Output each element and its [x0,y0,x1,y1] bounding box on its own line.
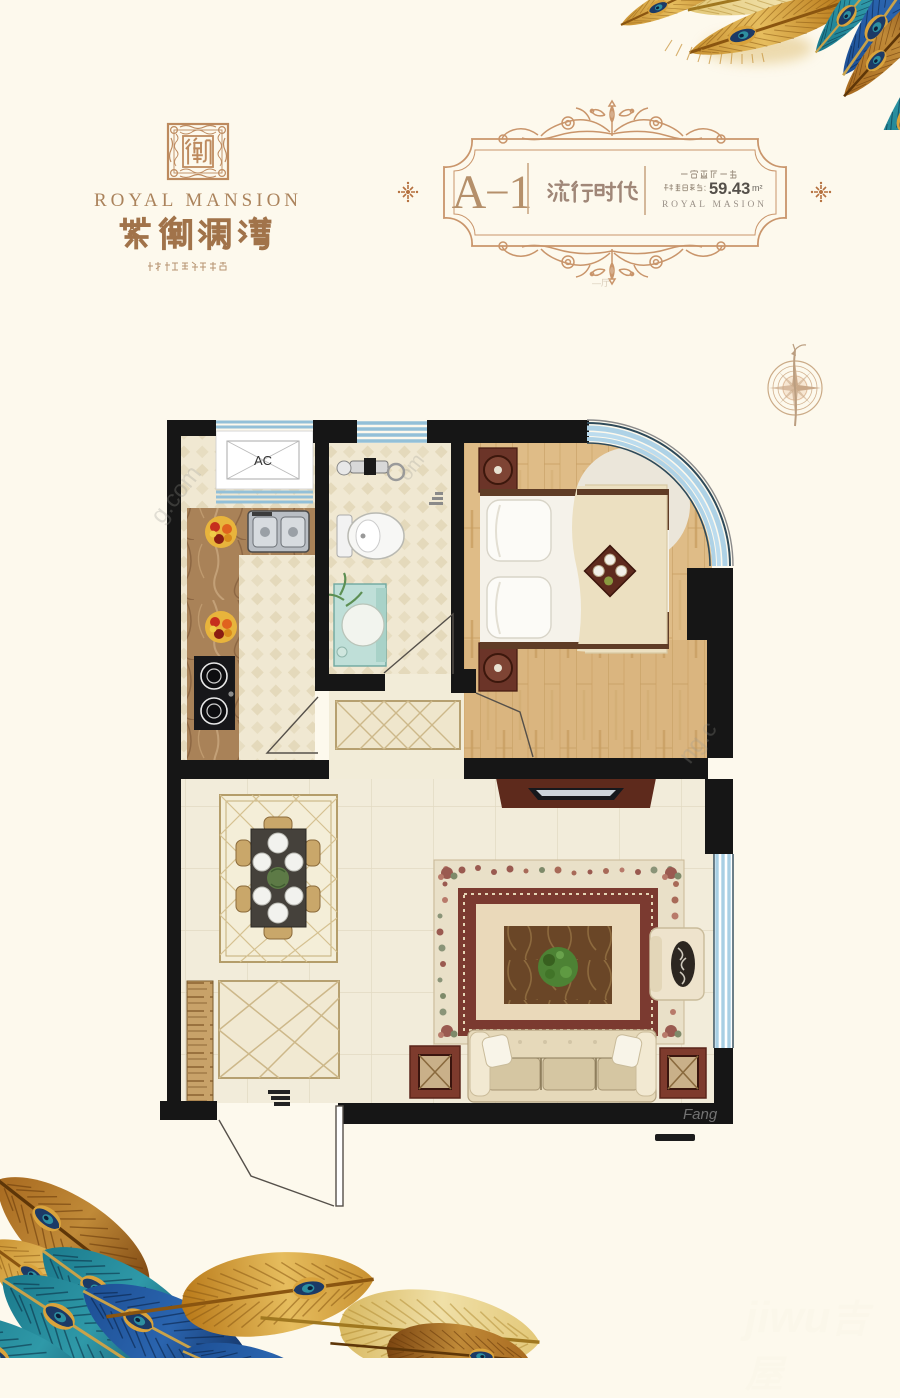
svg-text:—厅: —厅 [592,278,610,288]
svg-text:Fang: Fang [683,1106,718,1123]
svg-text:ROYAL MASION: ROYAL MASION [662,200,767,210]
svg-text:m²: m² [752,183,763,193]
svg-text:59.43: 59.43 [709,180,750,198]
svg-text:A–1: A–1 [452,166,533,219]
svg-text:AC: AC [254,453,272,468]
svg-text:ROYAL MANSION: ROYAL MANSION [94,190,302,211]
